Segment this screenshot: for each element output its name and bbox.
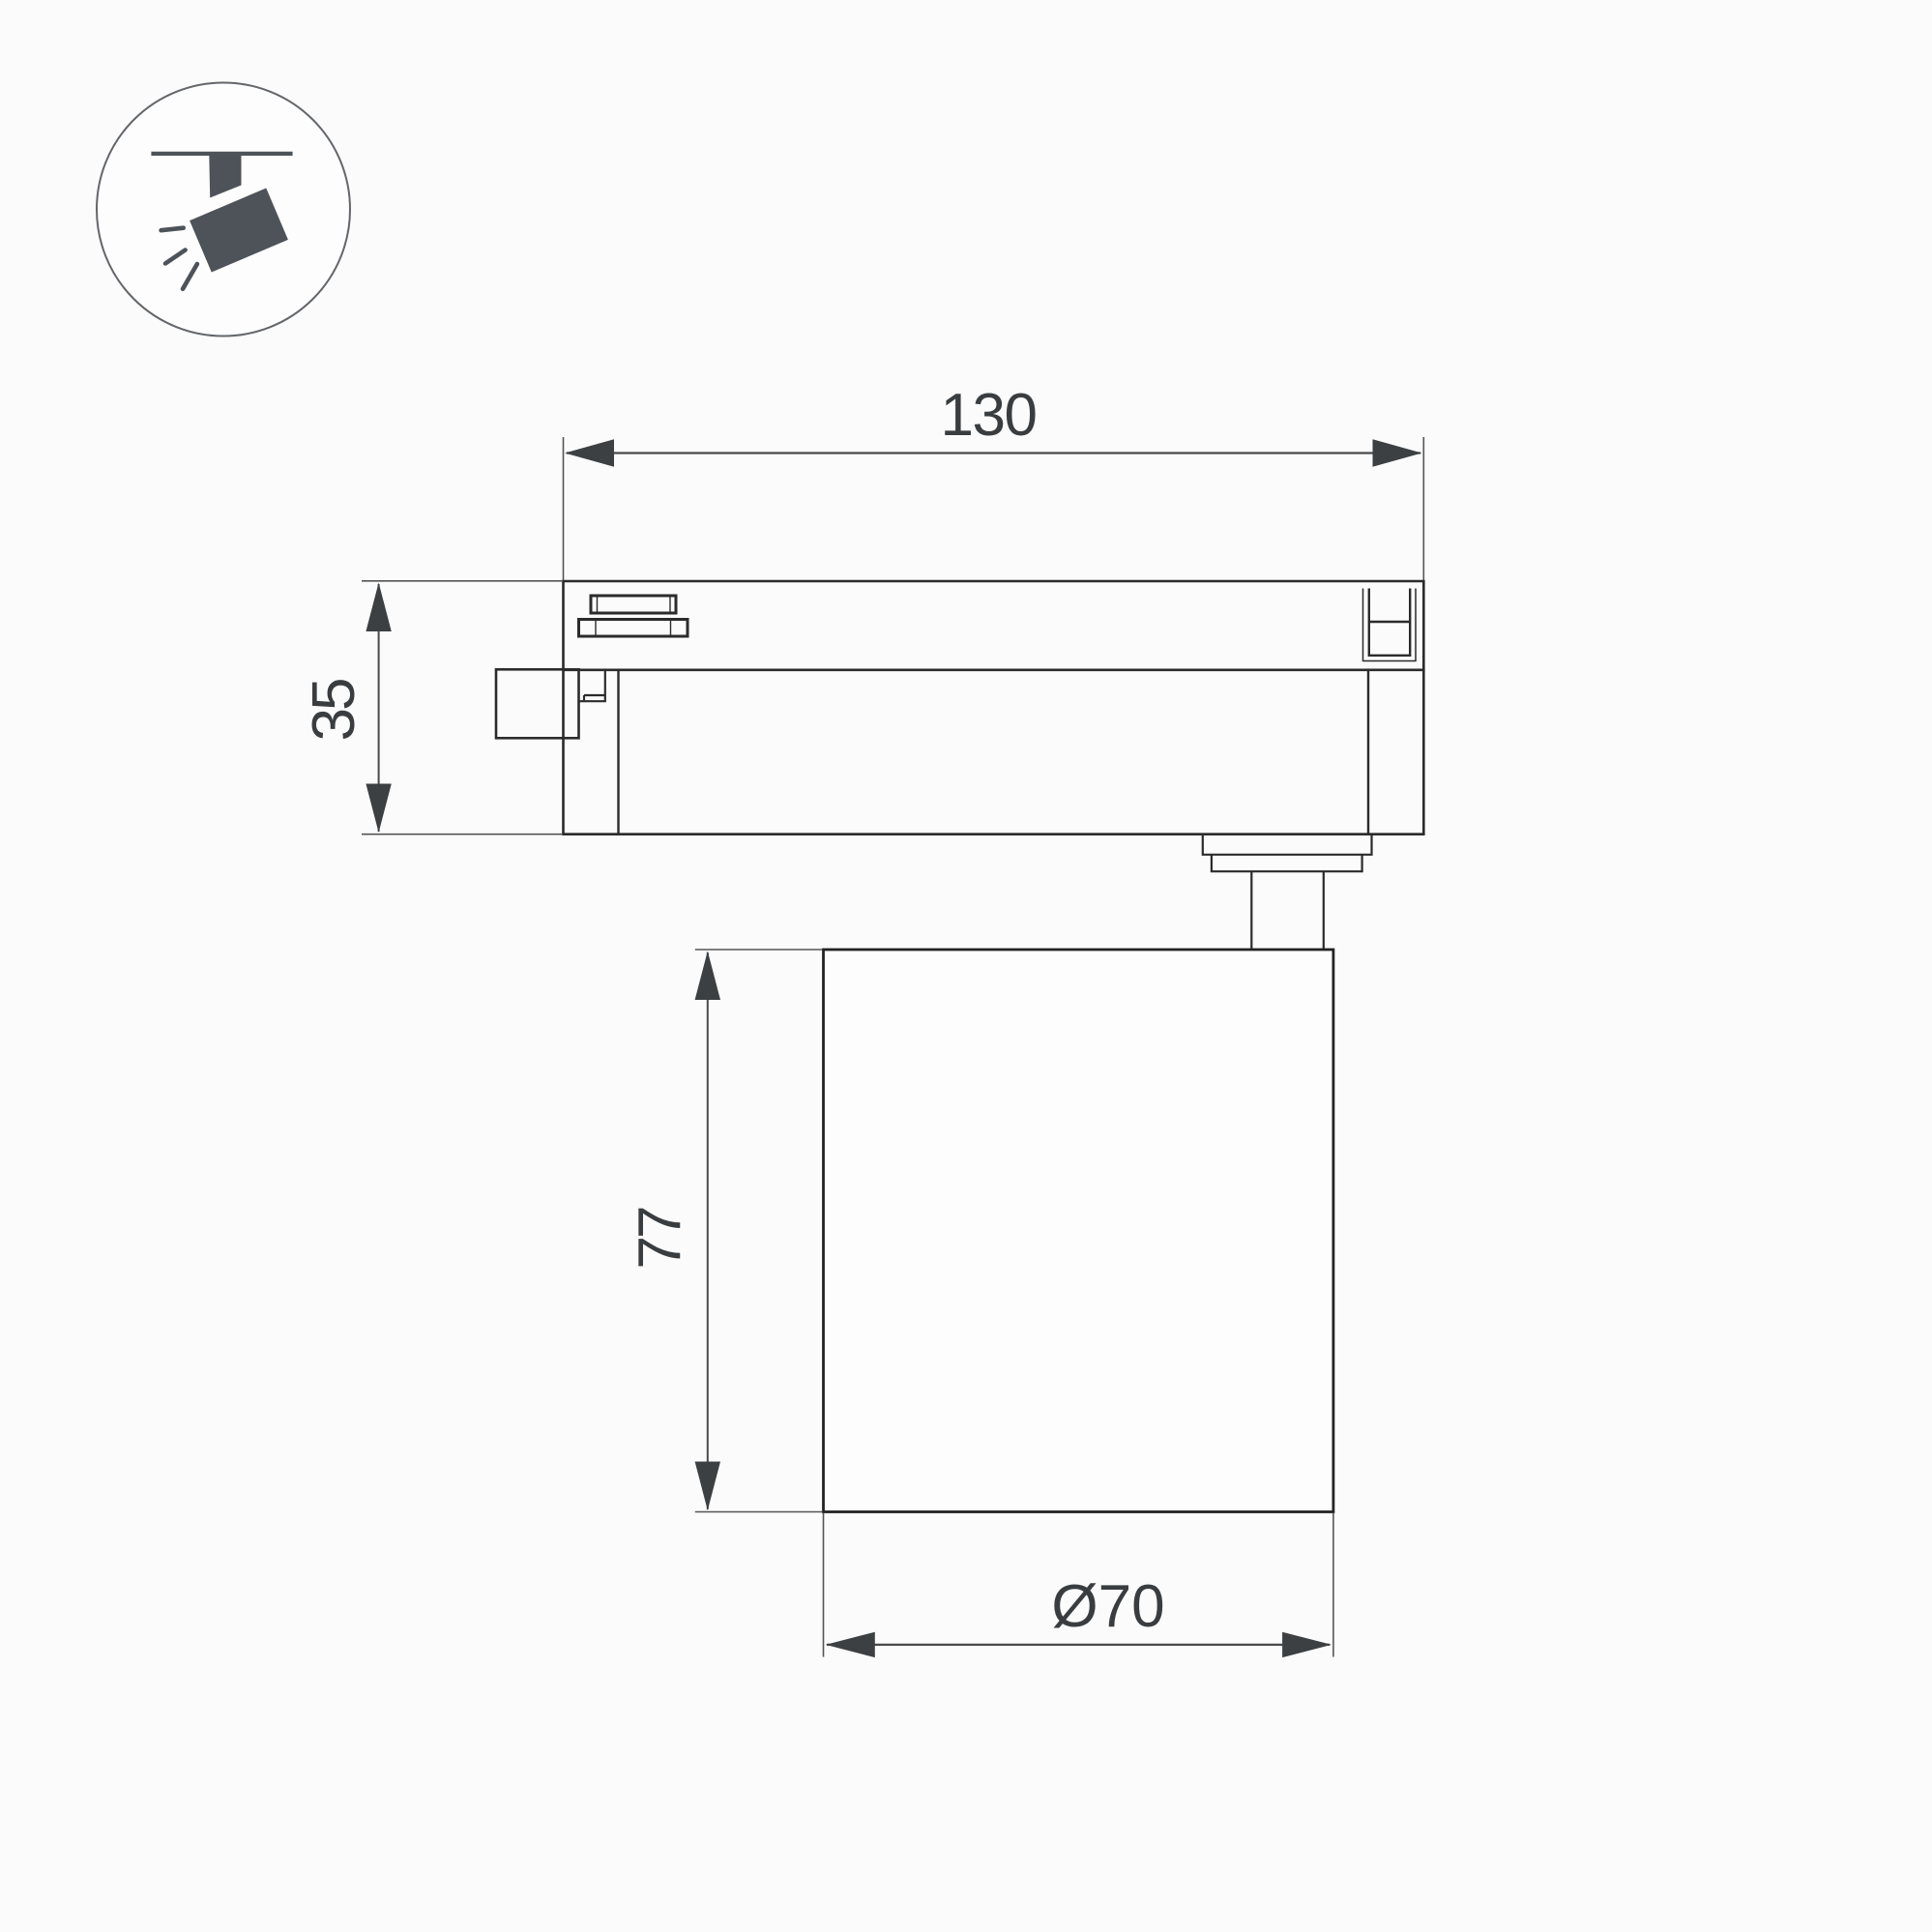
- svg-text:130: 130: [941, 382, 1037, 449]
- svg-text:Ø70: Ø70: [1051, 1573, 1164, 1640]
- svg-text:35: 35: [301, 680, 367, 741]
- svg-text:77: 77: [627, 1208, 693, 1269]
